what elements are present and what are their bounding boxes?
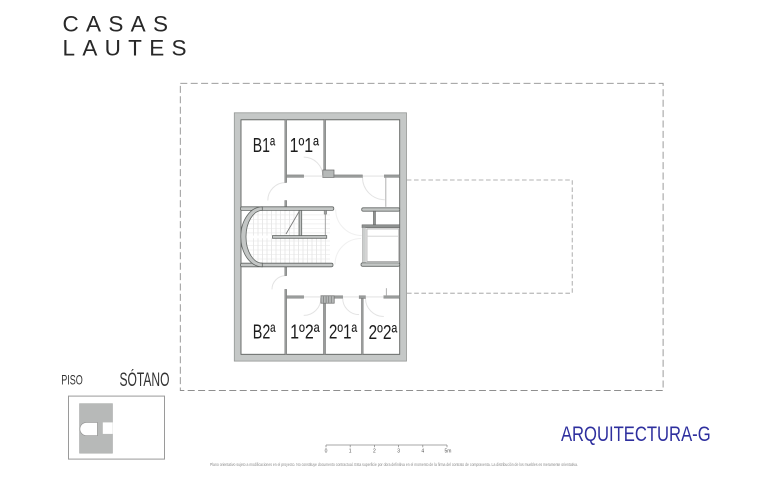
svg-text:SÓTANO: SÓTANO [120, 368, 170, 391]
svg-text:5m: 5m [445, 449, 452, 455]
svg-text:ARQUITECTURA-G: ARQUITECTURA-G [561, 423, 711, 446]
svg-text:B2ª: B2ª [253, 321, 276, 344]
svg-text:1º2ª: 1º2ª [290, 321, 320, 344]
svg-text:LAUTES: LAUTES [63, 36, 194, 61]
svg-text:B1ª: B1ª [253, 134, 276, 157]
svg-text:1º1ª: 1º1ª [290, 134, 320, 157]
svg-text:3: 3 [397, 449, 400, 455]
svg-text:2: 2 [373, 449, 376, 455]
svg-text:CASAS: CASAS [63, 11, 176, 36]
svg-text:4: 4 [421, 449, 424, 455]
svg-text:1: 1 [349, 449, 352, 455]
svg-text:0: 0 [325, 449, 328, 455]
svg-text:2º2ª: 2º2ª [369, 321, 398, 344]
svg-text:2º1ª: 2º1ª [329, 321, 358, 344]
svg-text:Plano orientativo sujeto a mod: Plano orientativo sujeto a modificacione… [210, 462, 578, 467]
svg-text:PISO: PISO [61, 372, 83, 388]
